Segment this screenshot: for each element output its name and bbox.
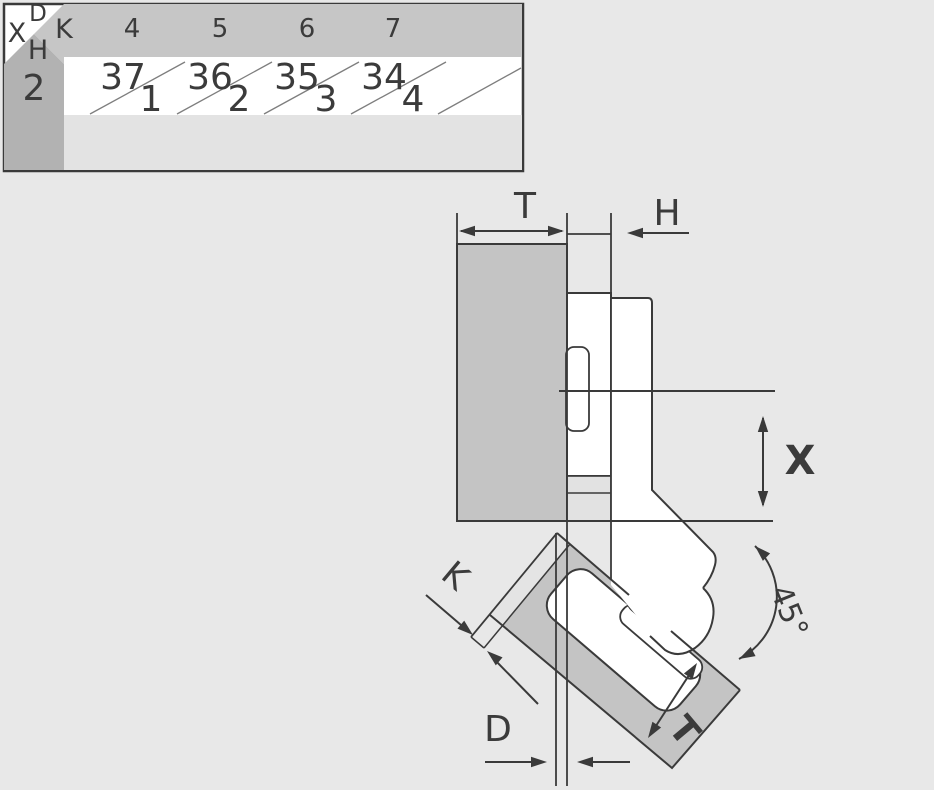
t-dim-label: T [513, 186, 537, 227]
cell-1-bottom: 1 [140, 79, 163, 120]
col-header-2: 5 [212, 14, 229, 44]
corner-label-x: X [8, 18, 27, 49]
plate-screw-slot [566, 347, 589, 431]
k-dim-line-2 [492, 657, 538, 704]
d-arrowhead-left [531, 757, 547, 767]
mounting-plate-base [567, 476, 611, 521]
x-arrowhead-bottom [758, 491, 768, 507]
hinge-drawing [457, 213, 775, 786]
h-arrowhead [627, 228, 643, 238]
k-dim-label: K [434, 554, 478, 600]
cabinet-panel [457, 244, 567, 521]
cell-3-bottom: 3 [315, 79, 338, 120]
hinge-application-figure: D X K H 4 5 6 7 2 37 1 36 2 35 3 34 4 [0, 0, 934, 790]
d-dim-label: D [484, 709, 512, 750]
cell-4-top: 34 [361, 57, 407, 98]
angle-arrowhead-top [751, 542, 770, 561]
cell-3-top: 35 [274, 57, 320, 98]
t-arrowhead-left [459, 226, 475, 236]
row-header: 2 [23, 68, 46, 109]
table-bottom-row [64, 115, 522, 170]
col-header-4: 7 [385, 14, 402, 44]
cell-2-top: 36 [187, 57, 233, 98]
x-dim-label: X [785, 438, 816, 484]
cell-2-bottom: 2 [228, 79, 251, 120]
h-dim-label: H [653, 193, 680, 234]
dimension-table: D X K H 4 5 6 7 2 37 1 36 2 35 3 34 4 [4, 1, 523, 171]
corner-label-k: K [55, 14, 74, 45]
k-extension-connector [471, 637, 484, 648]
cell-4-bottom: 4 [402, 79, 425, 120]
x-arrowhead-top [758, 416, 768, 432]
corner-label-h: H [28, 35, 48, 66]
figure-svg: D X K H 4 5 6 7 2 37 1 36 2 35 3 34 4 [0, 0, 934, 790]
t-arrowhead-right [548, 226, 564, 236]
col-header-3: 6 [299, 14, 316, 44]
k-arrowhead-2 [484, 647, 503, 665]
col-header-1: 4 [124, 14, 141, 44]
angle-label: 45° [762, 580, 814, 642]
hinge-arm-fill [611, 298, 716, 654]
d-arrowhead-right [577, 757, 593, 767]
corner-label-d: D [29, 1, 47, 27]
